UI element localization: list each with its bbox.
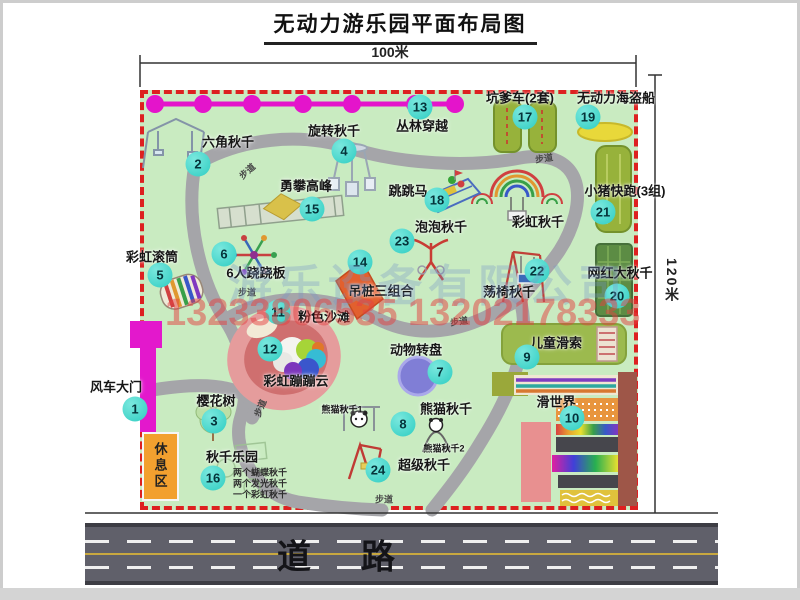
- width-dimension-label: 100米: [358, 42, 422, 62]
- attraction-label-6: 6人跷跷板: [226, 263, 285, 282]
- attraction-marker-23: 23: [390, 229, 415, 254]
- trail-label-2: 步道: [238, 286, 256, 299]
- trail-label-1: 步道: [534, 150, 554, 165]
- attraction-label-5: 彩虹滚筒: [126, 247, 178, 266]
- attraction-marker-10: 10: [560, 406, 585, 431]
- attraction-marker-16: 16: [201, 466, 226, 491]
- attraction-marker-24: 24: [366, 458, 391, 483]
- page-title-text: 无动力游乐园平面布局图: [264, 8, 537, 45]
- extra-label-1: 熊猫秋千1: [321, 403, 362, 416]
- attraction-label-17: 坑爹车(2套): [486, 88, 554, 107]
- attraction-marker-21: 21: [591, 200, 616, 225]
- attraction-label-3: 樱花树: [196, 391, 235, 410]
- attraction-marker-7: 7: [428, 360, 453, 385]
- attraction-label-2: 六角秋千: [202, 132, 254, 151]
- attraction-label-21: 小猪快跑(3组): [585, 181, 666, 200]
- attraction-label-14: 吊桩三组合: [348, 281, 413, 300]
- bubble-swing-icon: [414, 240, 448, 280]
- attraction-marker-8: 8: [391, 412, 416, 437]
- attraction-label-15: 勇攀高峰: [280, 176, 332, 195]
- attraction-label-20: 网红大秋千: [587, 263, 652, 282]
- attraction-marker-20: 20: [605, 284, 630, 309]
- extra-label-0: 彩虹秋千: [512, 212, 564, 231]
- attraction-marker-19: 19: [576, 105, 601, 130]
- attraction-marker-3: 3: [202, 409, 227, 434]
- attraction-label-18: 跳跳马: [388, 181, 427, 200]
- road-label-char1: 道: [277, 530, 311, 579]
- bottom-frame-strip: [0, 588, 800, 600]
- attraction-label-7: 动物转盘: [390, 340, 442, 359]
- attraction-marker-11: 11: [266, 300, 291, 325]
- attraction-label-24: 超级秋千: [398, 455, 450, 474]
- attraction-label-11: 粉色沙滩: [298, 307, 350, 326]
- attraction-label-9: 儿童滑索: [530, 333, 582, 352]
- trail-label-3: 步道: [449, 313, 469, 328]
- height-dimension-label: 120米: [662, 258, 682, 303]
- attraction-marker-2: 2: [186, 152, 211, 177]
- attraction-marker-13: 13: [408, 95, 433, 120]
- attraction-marker-1: 1: [123, 397, 148, 422]
- road: 道 路: [85, 523, 718, 585]
- road-label-char2: 路: [361, 530, 395, 579]
- attraction-marker-14: 14: [348, 250, 373, 275]
- road-lane-dashes-bottom: [85, 566, 718, 569]
- attraction-label-16: 秋千乐园: [206, 447, 258, 466]
- road-center-line: [85, 553, 718, 555]
- attraction-marker-6: 6: [212, 242, 237, 267]
- attraction-label-12: 彩虹蹦蹦云: [263, 371, 328, 390]
- park-layout-poster: 无动力游乐园平面布局图 100米 120米 休息区 风车大门1六角秋千2樱花树3…: [0, 0, 800, 600]
- rest-area-label: 休息区: [151, 442, 170, 490]
- attraction-marker-5: 5: [148, 263, 173, 288]
- attraction-label-23: 泡泡秋千: [415, 217, 467, 236]
- attraction-label-8: 熊猫秋千: [420, 399, 472, 418]
- attraction-marker-17: 17: [513, 105, 538, 130]
- attraction-label-1: 风车大门: [90, 377, 142, 396]
- swing-note-2: 一个彩虹秋千: [233, 488, 287, 501]
- extra-label-2: 熊猫秋千2: [423, 442, 464, 455]
- attraction-marker-9: 9: [515, 345, 540, 370]
- attraction-label-22: 荡椅秋千: [483, 282, 535, 301]
- attraction-label-4: 旋转秋千: [308, 121, 360, 140]
- attraction-marker-22: 22: [525, 259, 550, 284]
- attraction-marker-18: 18: [425, 188, 450, 213]
- road-lane-dashes-top: [85, 540, 718, 543]
- attraction-marker-12: 12: [258, 337, 283, 362]
- trail-label-5: 步道: [375, 493, 393, 506]
- attraction-marker-15: 15: [300, 197, 325, 222]
- page-title: 无动力游乐园平面布局图: [0, 8, 800, 45]
- attraction-marker-4: 4: [332, 139, 357, 164]
